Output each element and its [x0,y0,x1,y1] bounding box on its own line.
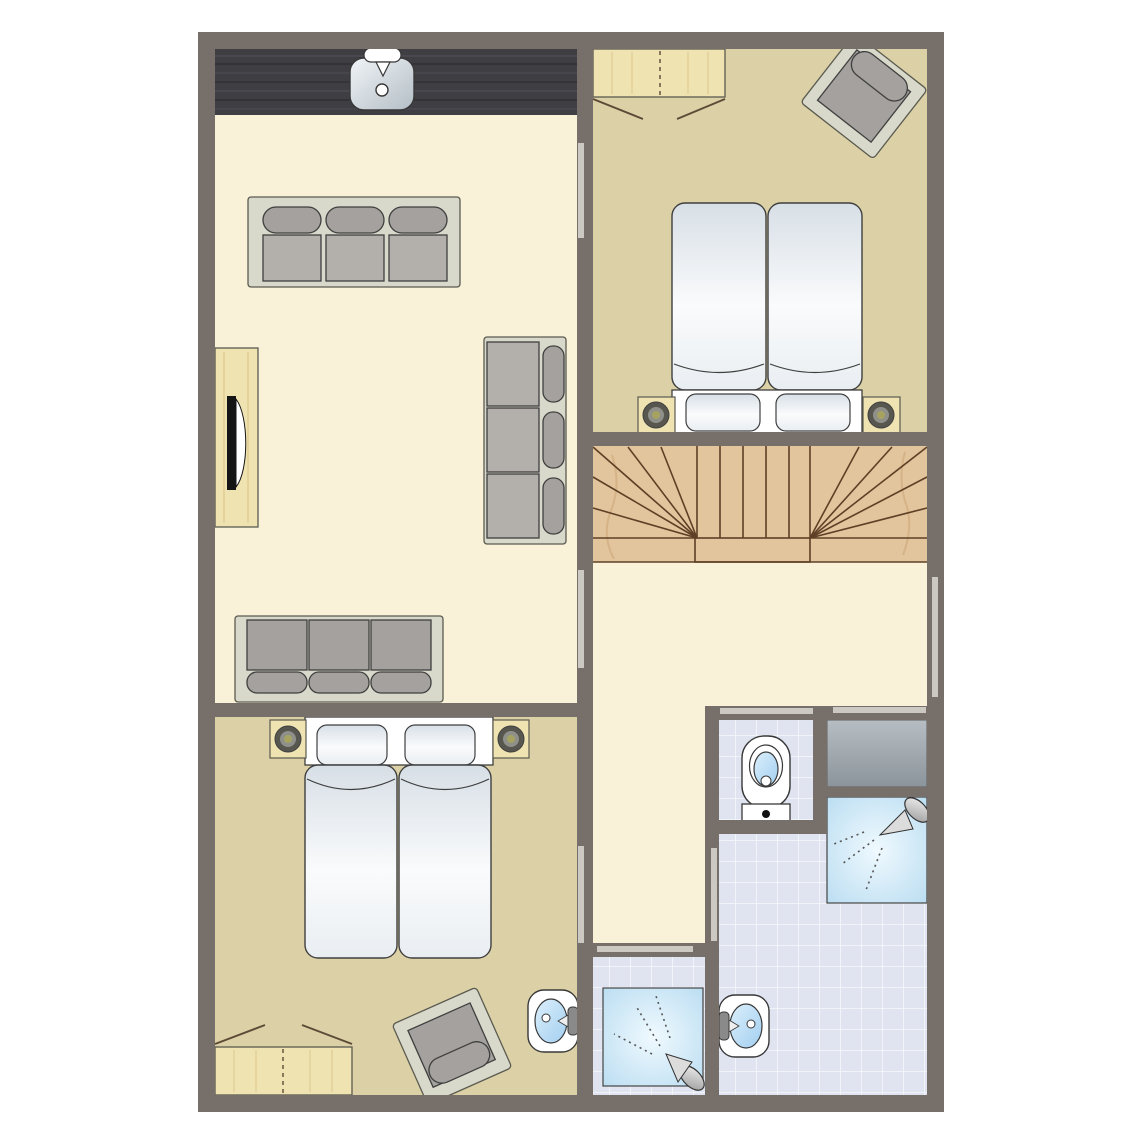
counter-unit [827,720,927,787]
nightstand-top-left [638,397,675,434]
floor-plan [0,0,1145,1145]
tap-icon [719,1012,729,1040]
sofa-right [484,337,566,544]
wall-living-bedroom [215,703,577,717]
outer-wall-left [198,32,215,1112]
outer-wall-bottom [198,1095,944,1112]
nightstand-top-right [863,397,900,434]
outer-wall-right [927,32,944,1112]
sink-drain [376,84,388,96]
hallway-floor [593,706,705,943]
tap-icon [568,1007,578,1035]
pillow [776,394,850,431]
washbasin-bedroom [528,990,578,1052]
floor-plan-page [0,0,1145,1145]
tv-cabinet [215,348,258,527]
shower-top-right [827,793,934,903]
pillow [405,725,475,765]
shower-bottom-room [603,988,709,1095]
nightstand-bottom-right [493,720,529,758]
toilet [742,736,790,824]
wall-wc-bottom [705,820,827,834]
door-opening-bedroom-bottom [578,846,584,943]
sofa-top [248,197,460,287]
outer-wall-top [198,32,944,49]
lamp-icon [275,726,301,752]
lamp-icon [498,726,524,752]
wall-wc-east [813,706,827,834]
kitchen-counter [215,48,578,115]
lamp-icon [868,402,894,428]
washbasin-bathroom [719,995,769,1057]
landing-floor [593,562,927,706]
pillow [686,394,760,431]
double-bed-bottom [305,717,493,958]
door-opening-wc [720,708,813,714]
door-opening-living-room [578,570,584,668]
window-right-wall [932,577,938,697]
lamp-icon [643,402,669,428]
nightstand-bottom-left [270,720,306,758]
wall-stairs-top [593,432,927,446]
pillow [317,725,387,765]
door-opening-bedroom-top [578,143,584,238]
wall-counter-shower [827,787,927,797]
sofa-bottom [235,616,443,702]
door-opening-bathroom [711,848,717,941]
door-opening-shower-room [597,946,693,952]
door-opening-counter-area [833,707,926,713]
